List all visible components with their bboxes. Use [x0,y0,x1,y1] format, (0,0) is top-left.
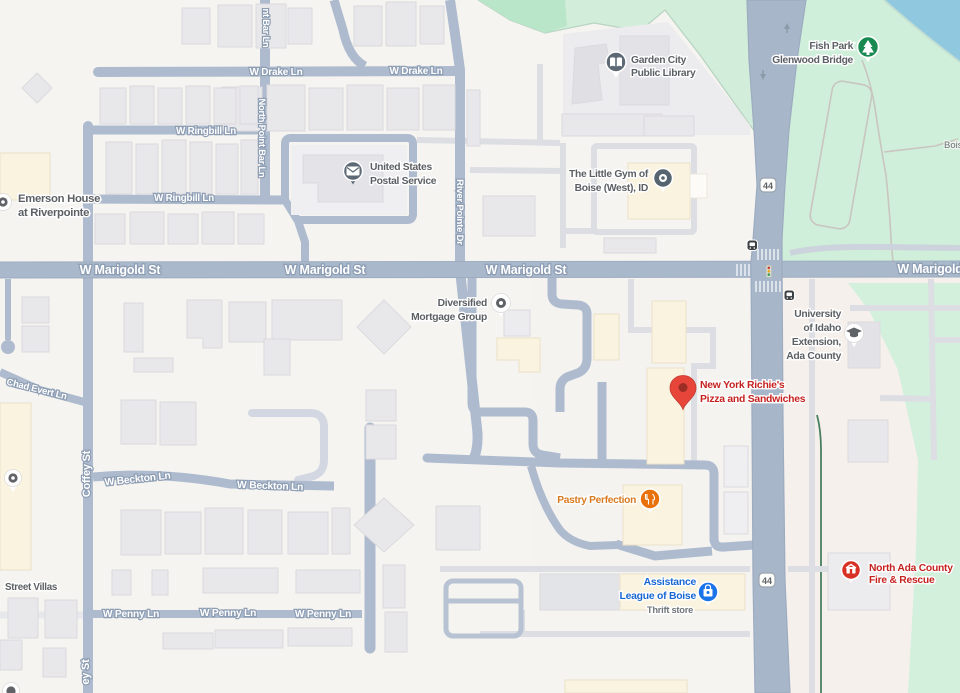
svg-text:North Ada County: North Ada County [869,563,953,574]
svg-text:W Penny Ln: W Penny Ln [295,609,351,620]
svg-text:League of Boise: League of Boise [619,591,696,602]
svg-text:North Point Bar Ln: North Point Bar Ln [257,98,267,178]
svg-text:Coffey St: Coffey St [81,450,93,497]
svg-text:Fish Park: Fish Park [809,41,853,52]
svg-text:44: 44 [763,181,773,191]
svg-text:Boise (West), ID: Boise (West), ID [575,183,648,194]
svg-text:W Marigold St: W Marigold St [285,263,367,277]
svg-text:Postal Service: Postal Service [370,176,437,187]
svg-text:Pastry Perfection: Pastry Perfection [557,495,636,506]
svg-text:Thrift store: Thrift store [647,605,693,615]
svg-text:Bois: Bois [944,140,960,151]
svg-text:Glenwood Bridge: Glenwood Bridge [772,55,853,66]
svg-text:University: University [794,309,841,320]
svg-text:Emerson House: Emerson House [18,193,100,205]
svg-text:Garden City: Garden City [631,55,687,66]
svg-text:W Drake Ln: W Drake Ln [389,66,442,77]
svg-text:W Beckton Ln: W Beckton Ln [237,480,304,493]
svg-text:44: 44 [762,576,772,586]
svg-text:W Marigold St: W Marigold St [486,263,568,277]
svg-text:W Penny Ln: W Penny Ln [103,609,159,620]
svg-text:Street Villas: Street Villas [5,582,58,593]
svg-text:W Ringbill Ln: W Ringbill Ln [154,193,214,204]
svg-text:Pizza and Sandwiches: Pizza and Sandwiches [700,394,806,405]
svg-text:Diversified: Diversified [438,298,487,309]
svg-text:New York Richie's: New York Richie's [700,380,785,391]
svg-text:Extension,: Extension, [792,337,842,348]
svg-text:W Marigold: W Marigold [897,262,960,276]
svg-text:Public Library: Public Library [631,68,696,79]
svg-text:of Idaho: of Idaho [803,323,841,334]
svg-text:Assistance: Assistance [644,577,697,588]
svg-text:W Marigold St: W Marigold St [80,263,162,277]
svg-text:The Little Gym of: The Little Gym of [569,169,649,180]
svg-text:at Riverpointe: at Riverpointe [18,207,89,219]
svg-text:Ada County: Ada County [786,351,841,362]
svg-text:ey St: ey St [80,659,92,685]
svg-text:W Penny Ln: W Penny Ln [200,608,256,619]
svg-text:River Pointe Dr: River Pointe Dr [454,179,465,245]
svg-text:W Ringbill Ln: W Ringbill Ln [176,126,236,137]
svg-text:Fire & Rescue: Fire & Rescue [869,575,935,586]
svg-text:Mortgage Group: Mortgage Group [411,312,487,323]
svg-text:W Drake Ln: W Drake Ln [249,67,302,78]
svg-text:nt Bar Ln: nt Bar Ln [261,8,271,48]
svg-text:United States: United States [370,162,432,173]
